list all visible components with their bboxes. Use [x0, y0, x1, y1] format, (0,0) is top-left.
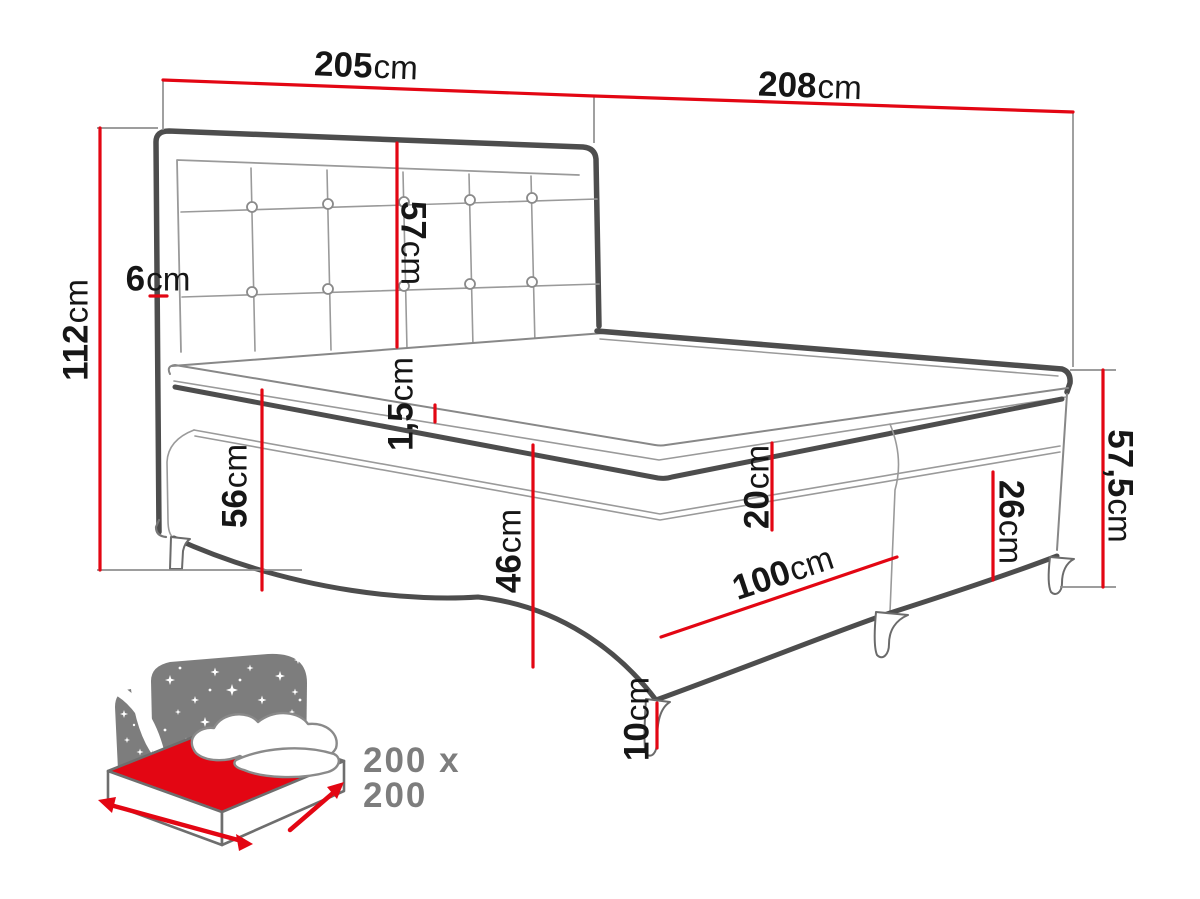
dim-mattress-thickness: 20cm: [739, 445, 774, 529]
dim-value: 1,5: [381, 402, 420, 451]
dim-unit: cm: [739, 445, 776, 489]
dim-value: 205: [313, 44, 373, 85]
dim-front-base-height: 46cm: [491, 509, 526, 593]
dim-line-top: [163, 80, 1073, 112]
dim-value: 56: [215, 489, 254, 528]
size-badge: 200 x 200: [363, 743, 533, 813]
dim-headboard-panel-height: 57cm: [395, 201, 430, 285]
dim-value: 20: [737, 490, 776, 529]
dim-value: 57,5: [1101, 429, 1140, 497]
dim-headboard-width: 205cm: [313, 46, 418, 85]
dim-side-base-height: 56cm: [217, 444, 252, 528]
dim-unit: cm: [146, 261, 190, 298]
leg-back-left: [170, 537, 190, 569]
dim-unit: cm: [992, 520, 1029, 564]
dim-value: 10: [617, 722, 656, 761]
dim-unit: cm: [58, 279, 95, 323]
dim-leg-height: 10cm: [619, 677, 654, 761]
bed-size-icon: [98, 654, 344, 851]
dim-unit: cm: [217, 444, 254, 488]
leg-front-middle: [875, 612, 908, 657]
dim-unit: cm: [491, 509, 528, 553]
dim-unit: cm: [394, 241, 431, 285]
dim-value: 208: [757, 65, 817, 106]
dim-topper-thickness: 1,5cm: [383, 357, 418, 451]
dim-value: 6: [126, 259, 145, 298]
bed-body-fill: [166, 333, 1071, 700]
dim-unit: cm: [817, 69, 863, 108]
dim-bed-length: 208cm: [758, 67, 863, 106]
dim-foot-height: 57,5cm: [1102, 429, 1137, 542]
dim-value: 26: [992, 480, 1031, 519]
dim-unit: cm: [619, 677, 656, 721]
bed-line-art: [0, 0, 1200, 899]
dim-unit: cm: [373, 49, 419, 88]
dim-headboard-height: 112cm: [58, 279, 93, 381]
bed-dimension-diagram: 205cm 208cm 112cm 6cm 57cm 1,5cm 56cm 46…: [0, 0, 1200, 899]
dim-frame-thickness: 6cm: [126, 261, 191, 296]
dim-value: 46: [489, 554, 528, 593]
dim-value: 112: [56, 324, 95, 380]
dim-unit: cm: [383, 357, 420, 401]
dim-unit: cm: [1101, 498, 1138, 542]
leg-front-right: [1049, 557, 1074, 594]
dim-foot-base-height: 26cm: [993, 480, 1028, 564]
dim-value: 57: [394, 201, 433, 240]
